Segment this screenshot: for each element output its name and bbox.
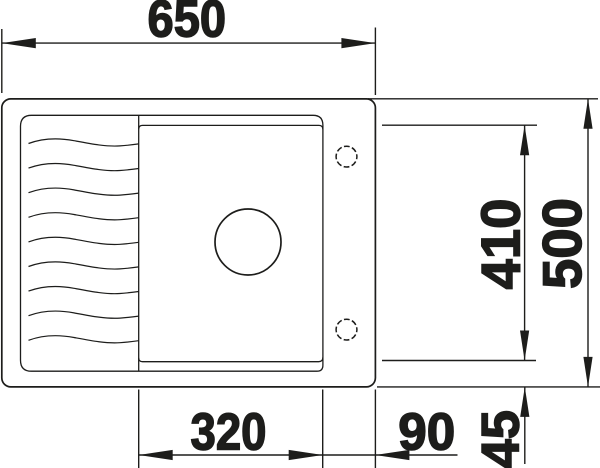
svg-text:650: 650 <box>148 0 227 48</box>
svg-text:320: 320 <box>191 402 267 460</box>
svg-text:45: 45 <box>472 410 531 468</box>
svg-text:90: 90 <box>398 402 455 460</box>
svg-text:500: 500 <box>532 198 593 289</box>
svg-text:410: 410 <box>470 199 531 290</box>
